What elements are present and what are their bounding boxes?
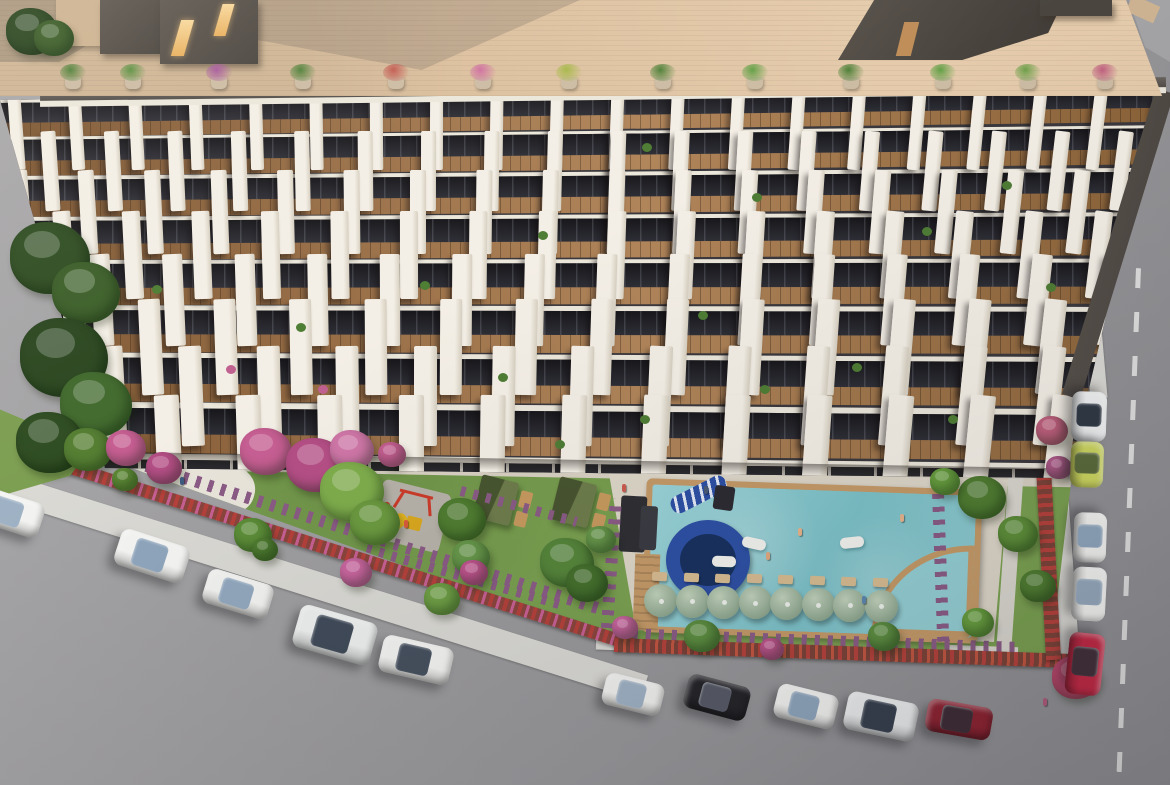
roof-edge-volume xyxy=(1040,0,1112,16)
umbrella-tip xyxy=(753,601,758,606)
swing-frame-leg xyxy=(393,489,406,508)
balcony-plant xyxy=(420,281,430,290)
person-figure xyxy=(798,528,802,536)
balcony-plant xyxy=(498,373,508,382)
balcony-plant xyxy=(752,193,762,202)
balcony-plant xyxy=(1046,283,1056,292)
parked-car xyxy=(1070,440,1105,487)
rooftop-terrace xyxy=(0,0,1170,96)
facade-pillar xyxy=(235,254,258,347)
water-slide-spiral xyxy=(666,520,750,600)
apartment-building-facade xyxy=(0,85,1170,485)
sun-lounger xyxy=(872,577,887,587)
roof-plant-pot xyxy=(290,64,316,90)
pot-plant xyxy=(930,64,956,81)
umbrella-tip xyxy=(690,599,695,604)
pool-umbrella xyxy=(865,590,898,623)
pot-plant xyxy=(290,64,316,81)
sun-lounger xyxy=(652,572,667,582)
sun-lounger xyxy=(778,575,793,585)
pool-umbrella xyxy=(707,586,740,619)
tree-bush xyxy=(760,638,784,660)
balcony-plant xyxy=(760,385,770,394)
roof-plant-pot xyxy=(742,64,768,90)
car-glass-roof xyxy=(1074,451,1099,473)
car-glass-roof xyxy=(1076,402,1103,426)
facade-pillar xyxy=(358,131,373,211)
pool-float xyxy=(712,556,736,568)
facade-pillar xyxy=(365,299,387,396)
facade-pillar xyxy=(162,254,186,347)
pot-plant xyxy=(60,64,86,81)
balcony-plant xyxy=(296,323,306,332)
tree-bush xyxy=(240,428,292,475)
umbrella-tip xyxy=(879,604,884,609)
parked-car xyxy=(1073,511,1108,562)
roof-plant-pot xyxy=(838,64,864,90)
facade-pillar xyxy=(178,346,205,447)
pool-umbrella xyxy=(739,586,772,619)
parked-car xyxy=(1071,390,1108,441)
tree-bush xyxy=(52,262,120,323)
facade-pillar xyxy=(277,170,295,254)
balcony-plant xyxy=(948,415,958,424)
balcony-plant xyxy=(1002,181,1012,190)
person-figure xyxy=(404,520,408,528)
roof-lit-doorway xyxy=(213,4,234,36)
car-glass-roof xyxy=(1076,579,1102,606)
terrace-shadow xyxy=(250,0,580,70)
roof-plant-pot xyxy=(930,64,956,90)
roof-plant-pot xyxy=(1015,64,1041,90)
tree-bush xyxy=(586,526,616,553)
umbrella-tip xyxy=(848,603,853,608)
tree-bush xyxy=(424,583,460,615)
roof-plant-pot xyxy=(206,64,232,90)
tree-bush xyxy=(1046,456,1072,479)
tree-bush xyxy=(612,616,638,639)
roof-stair-volume xyxy=(100,0,166,54)
roof-lit-doorway xyxy=(171,20,194,56)
tree-bush xyxy=(252,538,278,561)
pot-plant xyxy=(470,64,496,81)
person-figure xyxy=(1043,698,1047,706)
umbrella-tip xyxy=(659,599,664,604)
tree-bush xyxy=(340,558,372,587)
person-figure xyxy=(766,552,770,560)
roof-plant-pot xyxy=(383,64,409,90)
facade-pillar xyxy=(211,170,230,255)
pool-umbrella xyxy=(676,585,709,618)
person-figure xyxy=(862,596,866,604)
balcony-plant xyxy=(226,365,236,374)
umbrella-tip xyxy=(722,600,727,605)
umbrella-tip xyxy=(785,602,790,607)
facade-pillar xyxy=(330,211,349,299)
facade-pillar xyxy=(289,299,313,396)
sun-lounger xyxy=(809,576,824,586)
facade-pillar xyxy=(294,131,310,211)
roof-stair-volume xyxy=(160,0,258,64)
aerial-render-scene xyxy=(0,0,1170,785)
facade-pillar xyxy=(261,211,281,300)
tree-bush xyxy=(112,468,138,491)
tree-bush xyxy=(350,500,400,545)
person-figure xyxy=(900,514,904,522)
facade-pillar xyxy=(309,94,323,170)
pot-plant xyxy=(1092,64,1118,81)
tree-bush xyxy=(684,620,720,652)
tree-bush xyxy=(438,498,486,541)
pool-umbrella xyxy=(644,584,677,617)
parked-car xyxy=(1064,631,1106,696)
tree-bush xyxy=(868,622,900,651)
pot-plant xyxy=(556,64,582,81)
tree-bush xyxy=(930,468,960,495)
tree-bush xyxy=(1020,570,1056,602)
pool-umbrella xyxy=(833,589,866,622)
balcony-plant xyxy=(852,363,862,372)
facade-pillar xyxy=(440,299,462,395)
roof-plant-pot xyxy=(1092,64,1118,90)
roof-plant-pot xyxy=(60,64,86,90)
car-glass-roof xyxy=(1077,523,1102,547)
balcony-plant xyxy=(538,231,548,240)
balcony-plant xyxy=(698,311,708,320)
facade-pillar xyxy=(514,299,537,396)
pot-plant xyxy=(206,64,232,81)
pool-umbrella xyxy=(802,588,835,621)
roof-plant-pot xyxy=(650,64,676,90)
roof-plant-pot xyxy=(120,64,146,90)
balcony-plant xyxy=(555,440,565,449)
person-figure xyxy=(180,477,184,485)
roof-stair-volume-sloped xyxy=(838,0,1064,60)
balcony-plant xyxy=(642,143,652,152)
tree-bush xyxy=(146,452,182,484)
facade-pillar xyxy=(231,131,248,211)
pot-plant xyxy=(838,64,864,81)
tree-bush xyxy=(64,428,112,471)
balcony-plant xyxy=(152,285,162,294)
balcony-plant xyxy=(640,415,650,424)
tree-bush xyxy=(566,564,608,602)
facade-pillar xyxy=(213,299,238,396)
sun-lounger xyxy=(841,576,856,586)
pool-umbrella xyxy=(770,587,803,620)
sun-lounger xyxy=(715,573,730,583)
roof-plant-pot xyxy=(470,64,496,90)
pot-plant xyxy=(383,64,409,81)
facade-floor-row xyxy=(0,212,1170,260)
tree-bush xyxy=(460,560,488,585)
person-figure xyxy=(622,484,626,492)
balcony-plant xyxy=(922,227,932,236)
tree-bush xyxy=(1036,416,1068,445)
facade-pillar xyxy=(400,211,418,299)
tree-bush xyxy=(998,516,1038,552)
pot-plant xyxy=(742,64,768,81)
slide-platform xyxy=(712,485,735,512)
sun-lounger xyxy=(683,572,698,582)
car-glass-roof xyxy=(1070,646,1100,678)
tree-bush xyxy=(106,430,146,466)
sun-lounger xyxy=(746,574,761,584)
pot-plant xyxy=(120,64,146,81)
parked-car xyxy=(1071,566,1108,622)
person-figure xyxy=(704,486,708,494)
slide-stairs-upper xyxy=(639,506,658,551)
pot-plant xyxy=(1015,64,1041,81)
balcony-plant xyxy=(318,385,328,394)
facade-pillar xyxy=(138,299,164,396)
umbrella-tip xyxy=(816,603,821,608)
tree-bush xyxy=(378,442,406,467)
pot-plant xyxy=(650,64,676,81)
facade-pillar xyxy=(191,211,213,300)
roof-plant-pot xyxy=(556,64,582,90)
tree-bush xyxy=(962,608,994,637)
car-glass-roof xyxy=(939,704,974,733)
tree-bush xyxy=(34,20,74,56)
facade-pillar xyxy=(249,94,264,170)
tree-bush xyxy=(958,476,1006,519)
